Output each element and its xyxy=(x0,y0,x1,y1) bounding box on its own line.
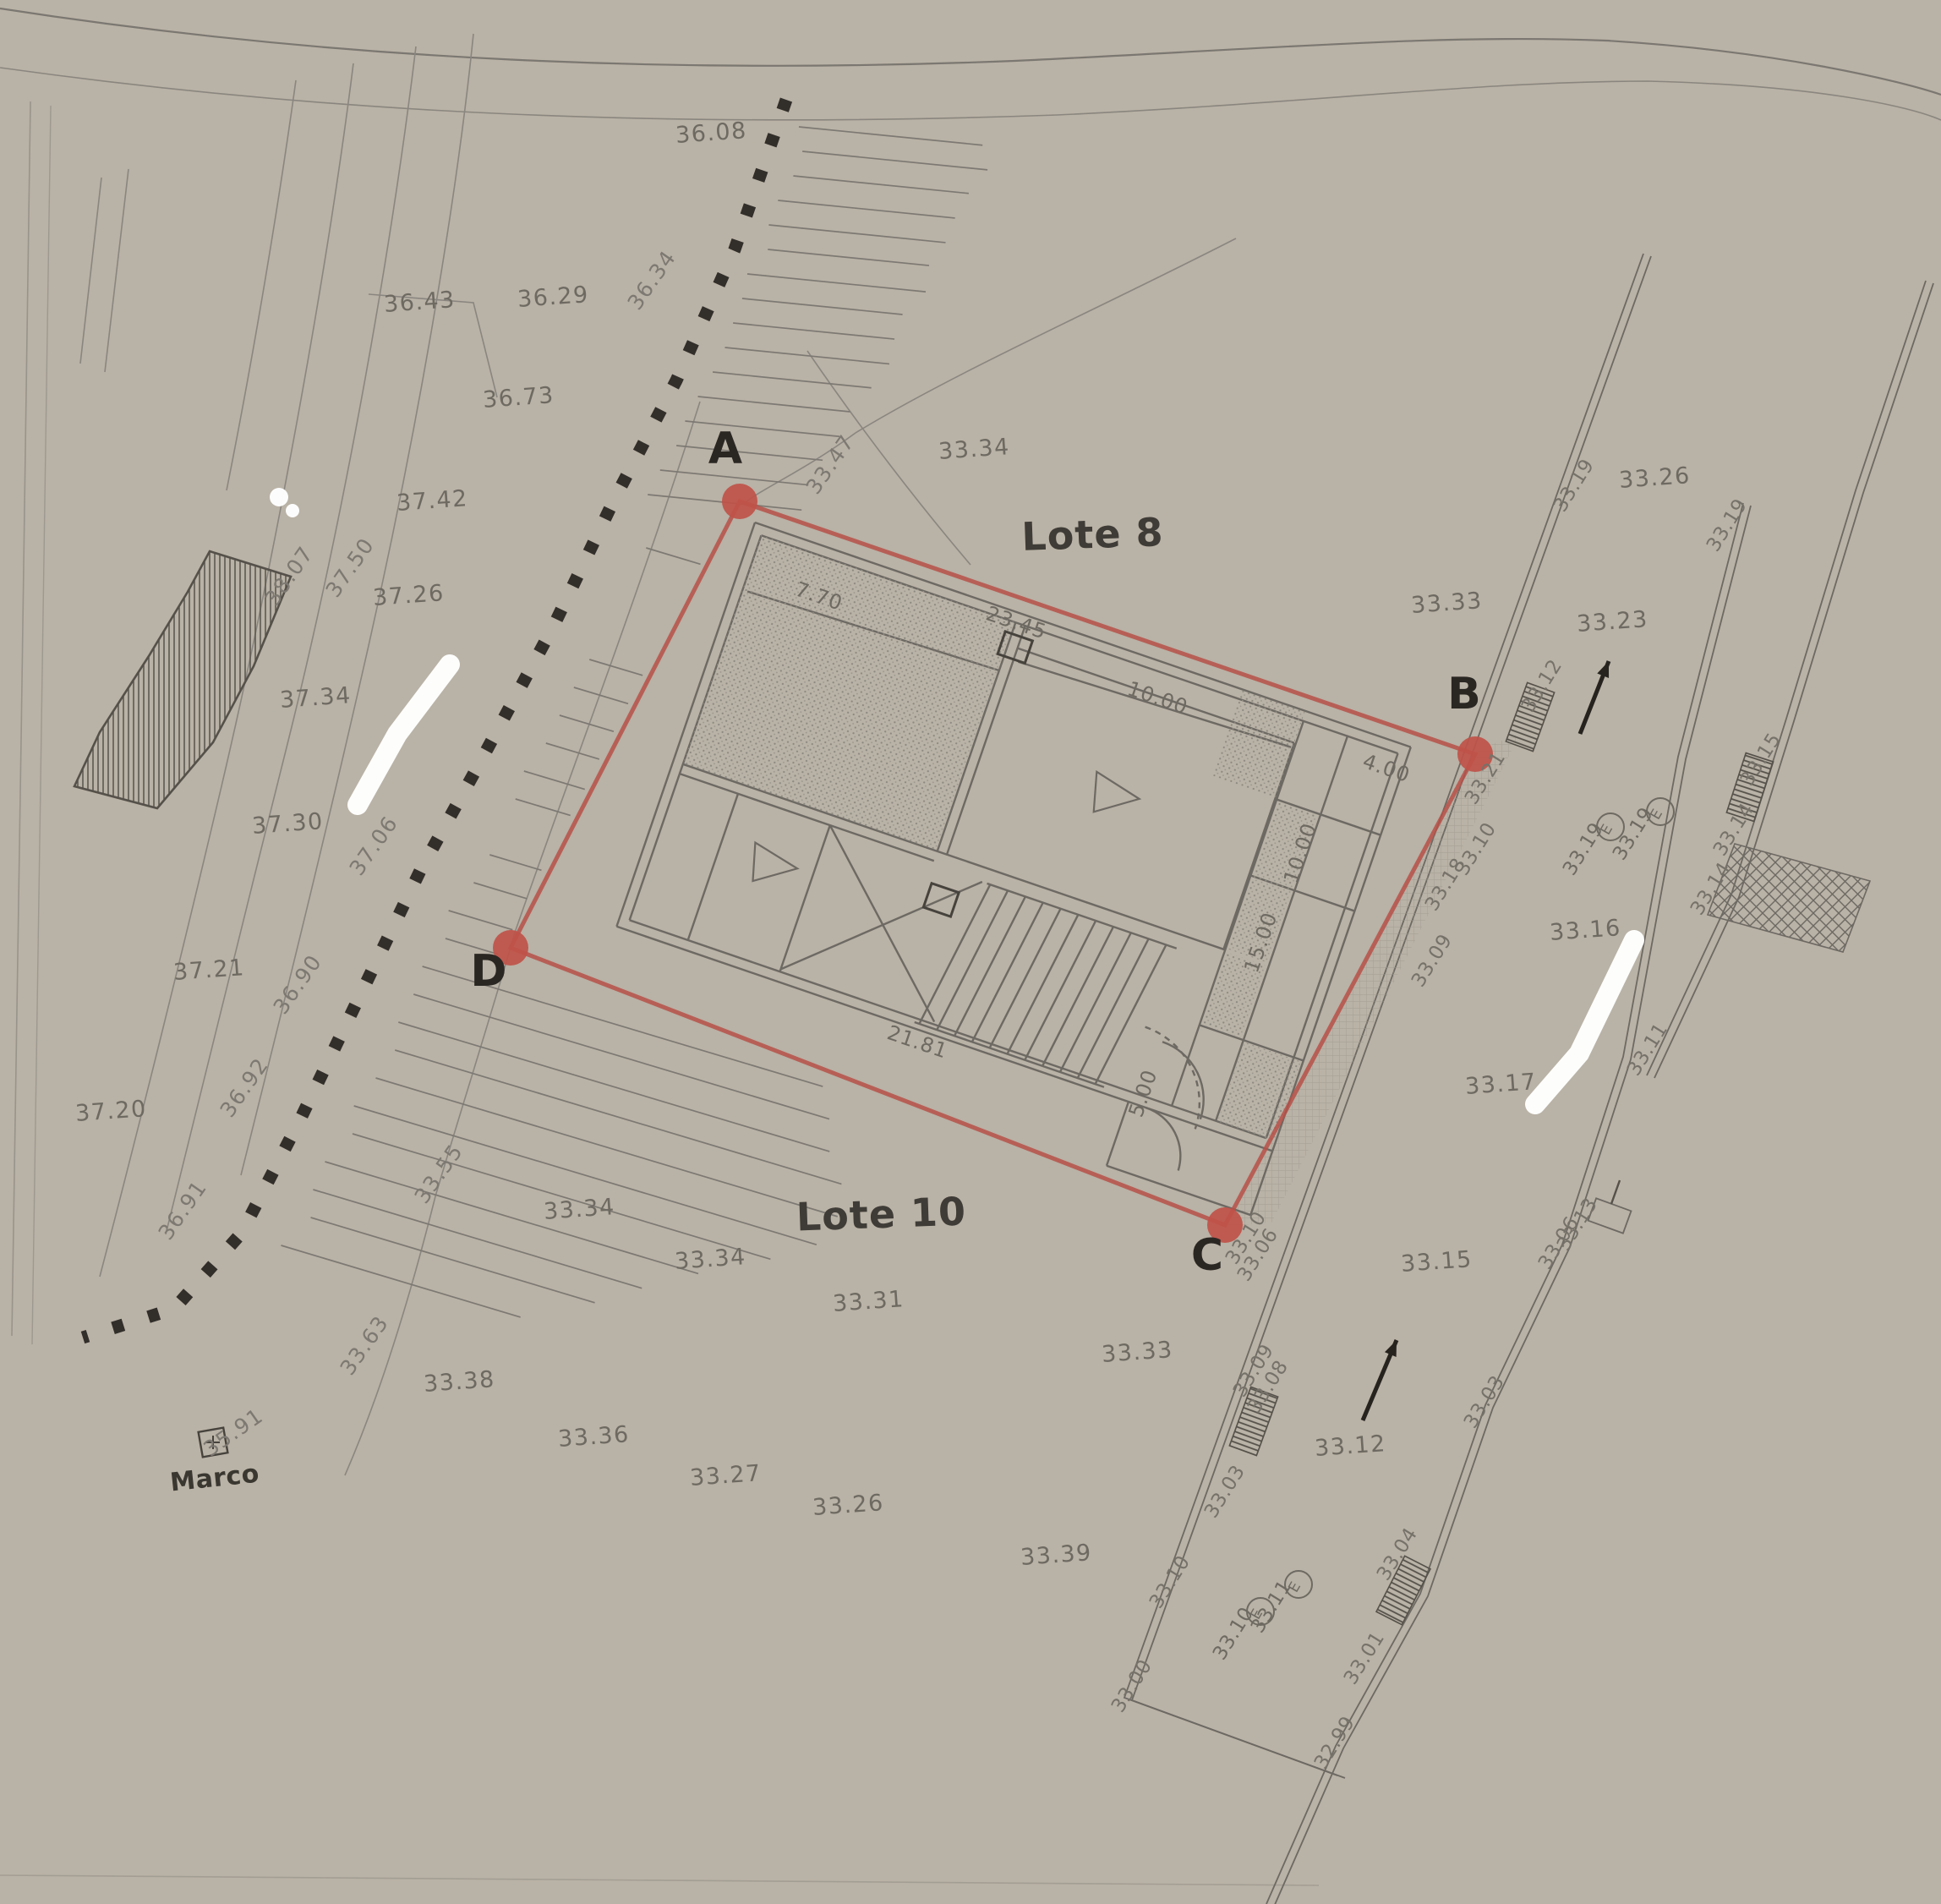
hachure xyxy=(778,200,954,218)
elevation-label: 33.15 xyxy=(1400,1246,1474,1278)
hachure xyxy=(473,883,527,899)
elevation-label: 33.38 xyxy=(423,1366,496,1398)
contour-line xyxy=(227,80,296,490)
north-arrow-head xyxy=(1597,661,1609,678)
building-wall xyxy=(780,825,830,971)
contour-elevation-label: 35.91 xyxy=(199,1403,267,1461)
road-elevation-label: 33.10 xyxy=(1145,1551,1195,1612)
lot-vertex-label: C xyxy=(1191,1230,1223,1281)
hachure xyxy=(560,715,614,731)
lot-name-label: Lote 10 xyxy=(796,1189,967,1240)
stair-step xyxy=(972,895,1043,1049)
elevation-label: 33.17 xyxy=(1464,1069,1538,1100)
contour-elevation-label: 33.47 xyxy=(801,429,859,498)
dimension-label: 4.00 xyxy=(1359,749,1413,787)
stair-step xyxy=(1025,914,1096,1068)
lot-name-label: Lote 8 xyxy=(1020,509,1164,560)
lot-vertex-dot xyxy=(722,484,757,519)
sheet-border-left-inner xyxy=(32,106,51,1344)
road-elevation-label: 33.03 xyxy=(1460,1371,1509,1432)
hachure xyxy=(413,994,829,1119)
white-out-spot xyxy=(270,488,288,506)
elevation-label: 33.27 xyxy=(689,1460,763,1491)
hachure xyxy=(747,274,926,292)
elevation-label: 33.26 xyxy=(812,1490,885,1521)
road-elevation-label: 33.03 xyxy=(1200,1461,1249,1522)
sheet-border-bottom xyxy=(0,1875,1319,1885)
hachure xyxy=(395,1050,841,1184)
contour-line xyxy=(80,178,101,364)
lot-vertex-label: A xyxy=(708,424,742,474)
hachure xyxy=(325,1162,698,1273)
elevation-label: 37.26 xyxy=(372,580,446,611)
contour-elevation-label: 37.50 xyxy=(320,533,379,601)
circled-e-elevation: 33.19 xyxy=(1559,818,1608,879)
stair-step xyxy=(1007,907,1078,1061)
hachure xyxy=(698,397,850,412)
stair-step xyxy=(1078,932,1149,1086)
dimension-label: 10.00 xyxy=(1124,676,1191,719)
north-arrow-head xyxy=(1385,1340,1397,1357)
hachure xyxy=(449,911,513,930)
elevation-label: 33.26 xyxy=(1618,462,1692,494)
elevation-label: 37.34 xyxy=(279,682,353,714)
hachure xyxy=(799,127,982,145)
level-triangle-mark xyxy=(743,843,801,894)
stair-step xyxy=(954,889,1025,1043)
stippled-floor-area xyxy=(683,535,1015,851)
road-elevation-label: 32.99 xyxy=(1310,1712,1359,1773)
road-east xyxy=(1647,281,1926,1075)
road-elevation-label: 33.19 xyxy=(1703,495,1752,555)
stair-step xyxy=(990,901,1061,1055)
hachure xyxy=(725,347,889,364)
elevation-label: 33.33 xyxy=(1101,1337,1174,1368)
elevation-label: 37.42 xyxy=(396,485,469,517)
stair-step xyxy=(919,878,990,1031)
hachure xyxy=(768,225,945,243)
elevation-label: 33.39 xyxy=(1020,1540,1093,1571)
level-triangle-mark xyxy=(1084,772,1143,824)
elevation-label: 33.12 xyxy=(1314,1431,1387,1462)
elevation-label: 37.30 xyxy=(251,808,325,840)
white-out-streak xyxy=(1535,940,1634,1104)
hachure xyxy=(676,446,823,460)
hachure xyxy=(733,323,894,339)
stair-step xyxy=(1042,920,1113,1074)
lot-vertex-label: B xyxy=(1447,669,1481,719)
elevation-label: 33.36 xyxy=(557,1421,631,1453)
contour-elevation-label: 37.06 xyxy=(344,811,402,879)
hachure xyxy=(398,1022,829,1152)
hachure xyxy=(713,372,872,388)
hachure xyxy=(546,743,599,759)
road-east xyxy=(1654,283,1933,1078)
white-out-streak xyxy=(358,665,450,805)
road-middle xyxy=(1274,506,1751,1904)
elevation-label: 33.23 xyxy=(1576,606,1649,637)
circled-e-elevation: 33.10 xyxy=(1209,1603,1258,1664)
hachure xyxy=(793,176,968,194)
hachure xyxy=(646,548,700,564)
hachure xyxy=(589,659,642,676)
circled-e-elevation: 33.11 xyxy=(1247,1576,1296,1637)
circled-e-symbol: E33.11 xyxy=(1247,1571,1312,1637)
circled-e-elevation: 33.19 xyxy=(1609,803,1658,864)
white-out-spot xyxy=(286,504,299,517)
elevation-label: 33.16 xyxy=(1549,915,1622,946)
hachure xyxy=(742,298,903,315)
hachure xyxy=(281,1245,520,1317)
crosswalk-hatch xyxy=(1708,844,1870,952)
elevation-label: 33.34 xyxy=(674,1244,747,1275)
elevation-label: 36.29 xyxy=(517,282,590,313)
elevation-label: 33.31 xyxy=(832,1286,905,1317)
elevation-label: 36.73 xyxy=(482,382,555,413)
elevation-label: 36.08 xyxy=(675,118,748,149)
elevation-label: 33.34 xyxy=(938,434,1011,465)
hatched-structure xyxy=(74,551,291,808)
elevation-label: 33.33 xyxy=(1410,588,1484,619)
hachure xyxy=(524,771,585,790)
building-wall xyxy=(688,794,738,940)
sheet-border xyxy=(0,8,1941,1885)
elevation-label: 36.43 xyxy=(383,287,457,318)
lot-vertex-label: D xyxy=(470,946,506,997)
stair-step xyxy=(1096,938,1167,1092)
elevation-label: 37.20 xyxy=(74,1096,148,1127)
utility-box-arrow xyxy=(1611,1180,1620,1204)
hachure xyxy=(768,249,929,265)
contour-line xyxy=(105,169,128,372)
contour-elevation-label: 36.34 xyxy=(622,245,681,314)
contour-elevation-label: 33.55 xyxy=(409,1139,467,1207)
survey-plan-drawing: 7.7023.4510.004.0010.0015.0021.815.00ABC… xyxy=(0,0,1941,1904)
hachure xyxy=(489,855,541,870)
contour-elevation-label: 36.90 xyxy=(268,949,326,1018)
stair-step xyxy=(937,884,1008,1037)
site-plan-photo: 7.7023.4510.004.0010.0015.0021.815.00ABC… xyxy=(0,0,1941,1904)
stair-step xyxy=(1060,926,1131,1080)
road-elevation-label: 33.11 xyxy=(1623,1019,1672,1080)
road-elevation-label: 33.19 xyxy=(1550,455,1599,516)
elevation-label: 33.34 xyxy=(543,1194,616,1225)
hachure xyxy=(802,151,987,170)
elevation-label: 37.21 xyxy=(172,955,246,986)
sheet-border-left xyxy=(12,101,30,1336)
contour-elevation-label: 36.91 xyxy=(153,1175,211,1244)
marco-label: Marco xyxy=(169,1459,261,1498)
contour-elevation-label: 36.92 xyxy=(215,1053,273,1121)
road-middle xyxy=(1266,503,1743,1904)
